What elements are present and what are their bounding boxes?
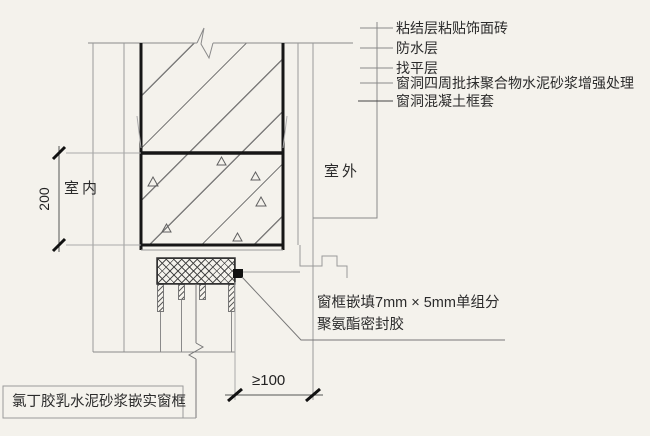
detail-drawing-canvas: 粘结层粘贴饰面砖 防水层 找平层 窗洞四周批抹聚合物水泥砂浆增强处理 窗洞混凝土… — [0, 0, 650, 436]
sealant-label-line1: 窗框嵌填7mm × 5mm单组分 — [317, 295, 499, 312]
label-layer-polymer: 窗洞四周批抹聚合物水泥砂浆增强处理 — [396, 75, 634, 92]
frame-bedding-label: 氯丁胶乳水泥砂浆嵌实窗框 — [12, 394, 186, 411]
dimension-200-label: 200 — [36, 182, 52, 216]
drawing-lines — [0, 0, 650, 436]
room-label-indoor: 室内 — [64, 180, 100, 198]
dimension-200 — [53, 146, 141, 252]
frame-break-symbol — [189, 343, 203, 359]
room-label-outdoor: 室外 — [324, 163, 360, 181]
layer-label-leaders — [313, 22, 393, 218]
label-layer-concrete-frame: 窗洞混凝土框套 — [396, 93, 494, 110]
break-symbol — [197, 28, 213, 58]
label-layer-tile: 粘结层粘贴饰面砖 — [396, 20, 508, 37]
sealant-square — [233, 269, 243, 278]
dimension-100-label: ≥100 — [252, 372, 285, 390]
mortar-bed-outline — [157, 258, 243, 284]
concrete-triangle-symbols — [148, 157, 266, 241]
sealant-label-line2: 聚氨酯密封胶 — [317, 317, 404, 334]
label-layer-waterproof: 防水层 — [396, 40, 438, 57]
